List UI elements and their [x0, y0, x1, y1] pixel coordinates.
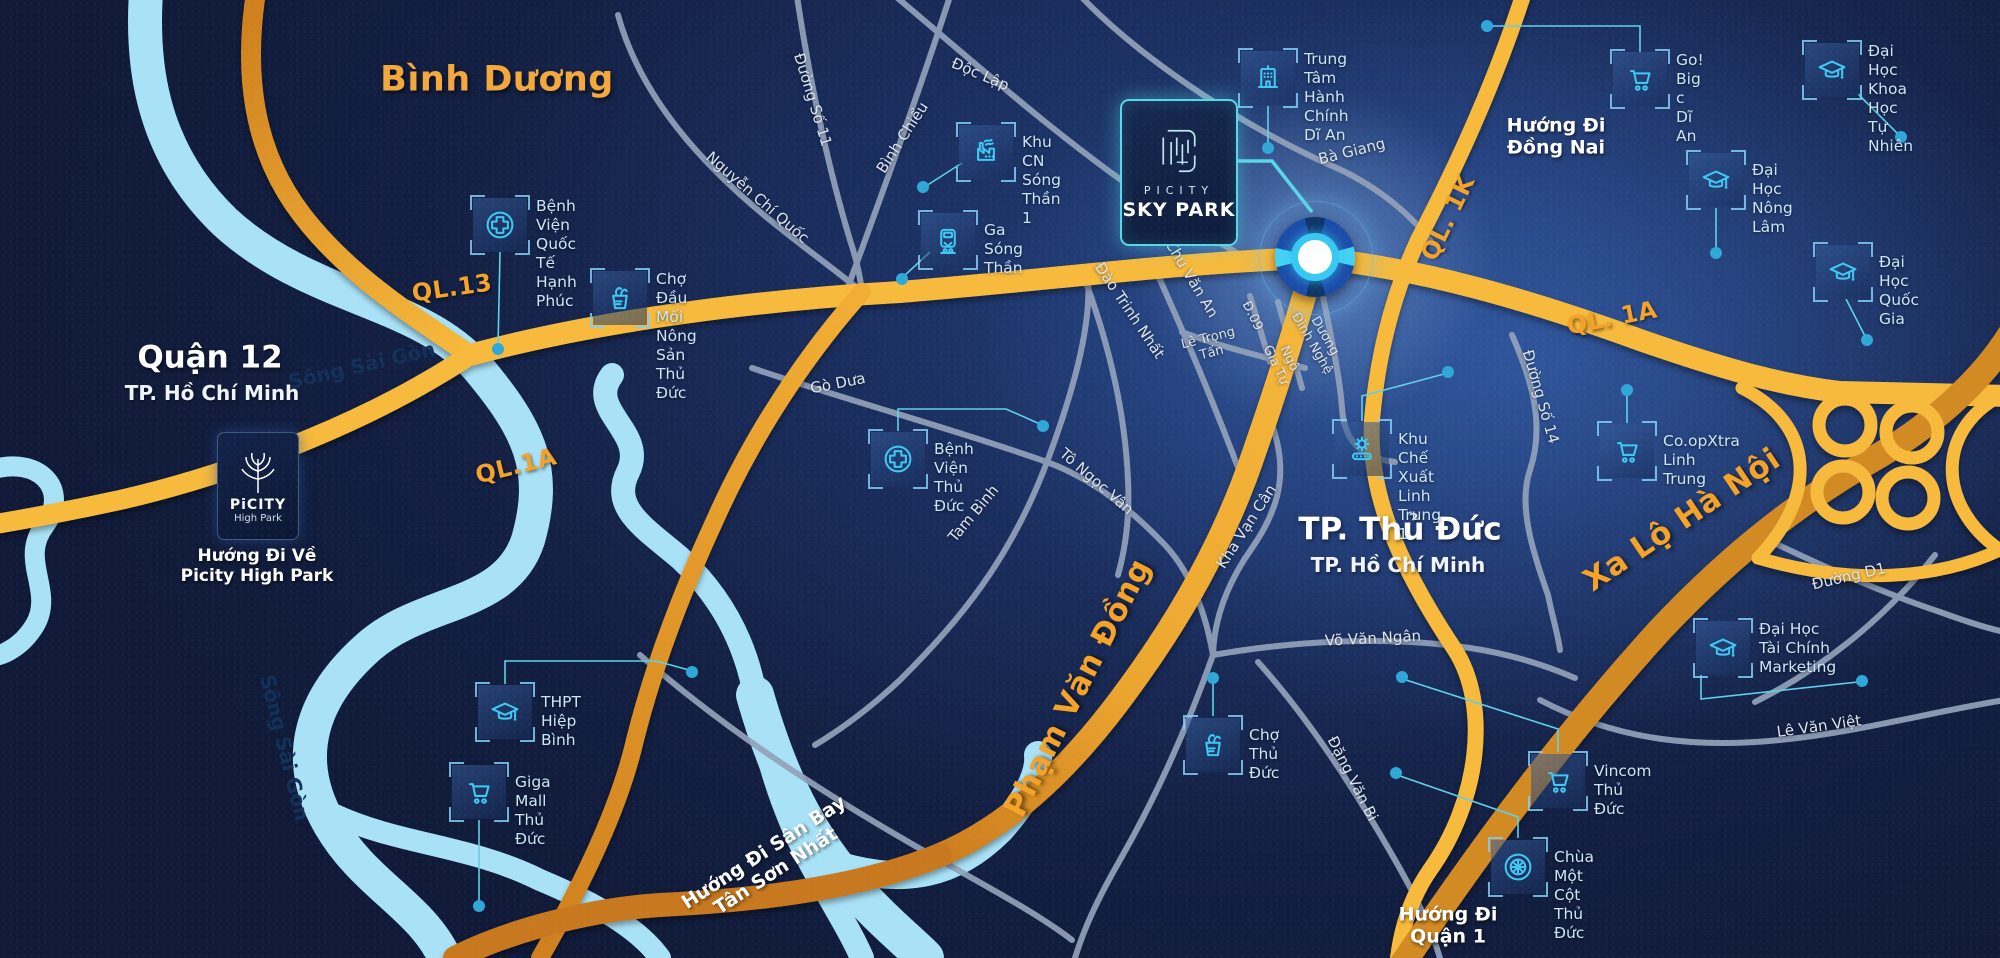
- gear-icon[interactable]: [1335, 422, 1389, 476]
- street-go-dua-to-ngoc-van: [752, 368, 1213, 655]
- graduation-cap-icon[interactable]: [1696, 621, 1750, 675]
- poi-label-benh-vien-thu-duc: Bệnh Viện Thủ Đức: [934, 440, 974, 516]
- graduation-cap-icon[interactable]: [1816, 245, 1870, 299]
- poi-label-dai-hoc-tai-chinh-marketing: Đại Học Tài Chính Marketing: [1759, 620, 1836, 677]
- picity-sky-park-card[interactable]: PICITY SKY PARK: [1120, 99, 1238, 246]
- river-left-squiggle: [0, 466, 54, 656]
- leader-dot: [492, 343, 504, 355]
- road-ql1a-main: [470, 258, 2000, 396]
- picity-sky-park-name: SKY PARK: [1122, 199, 1235, 221]
- cloverleaf-loop-nw: [1819, 399, 1871, 451]
- poi-label-cho-dau-moi-nong-san: Chợ Đầu Mối Nông Sản Thủ Đức: [656, 270, 697, 403]
- cloverleaf-loop-se: [1882, 472, 1934, 524]
- poi-label-chua-mot-cot-thu-duc: Chùa Một Cột Thủ Đức: [1554, 848, 1594, 943]
- building-icon[interactable]: [1241, 51, 1295, 105]
- leader-dot: [1710, 247, 1722, 259]
- poi-label-dai-hoc-quoc-gia: Đại Học Quốc Gia: [1879, 253, 1919, 329]
- poi-label-benh-vien-quoc-te-hanh-phuc: Bệnh Viện Quốc Tế Hạnh Phúc: [536, 197, 577, 311]
- leader-dot: [1442, 366, 1454, 378]
- street-duong-so-14: [1512, 335, 1560, 650]
- poi-label-trung-tam-hanh-chinh-di-an: Trung Tâm Hành Chính Dĩ An: [1304, 50, 1349, 145]
- leader-dot: [1207, 672, 1219, 684]
- street-chu-van-an: [1152, 262, 1242, 478]
- street-junction-south: [1075, 655, 1213, 958]
- train-icon[interactable]: [921, 213, 975, 267]
- picity-high-park-name: High Park: [234, 513, 282, 524]
- graduation-cap-icon[interactable]: [1689, 153, 1743, 207]
- leader-dot: [1037, 420, 1049, 432]
- poi-label-khu-cn-song-than-1: Khu CN Sóng Thần 1: [1022, 133, 1061, 228]
- picity-high-park-logo-icon: [236, 449, 280, 497]
- market-icon[interactable]: [1186, 718, 1240, 772]
- poi-label-cho-thu-duc: Chợ Thủ Đức: [1249, 726, 1279, 783]
- poi-label-ga-song-than: Ga Sóng Thần: [984, 221, 1023, 278]
- leader-line: [1846, 299, 1865, 336]
- location-map: Bình DươngQuận 12TP. Hồ Chí MinhTP. Thủ …: [0, 0, 2000, 958]
- leader-dot: [917, 181, 929, 193]
- poi-label-coopxtra-linh-trung: Co.opXtra Linh Trung: [1663, 432, 1740, 489]
- poi-label-khu-che-xuat-linh-trung-1: Khu Chế Xuất Linh Trung 1: [1398, 430, 1441, 544]
- dharma-wheel-icon[interactable]: [1491, 840, 1545, 894]
- leader-dot: [473, 900, 485, 912]
- hospital-icon[interactable]: [473, 198, 527, 252]
- leader-dot: [1861, 334, 1873, 346]
- graduation-cap-icon[interactable]: [1805, 43, 1859, 97]
- leader-dot: [1621, 384, 1633, 396]
- leader-dot: [1396, 671, 1408, 683]
- picity-high-park-card[interactable]: PiCITY High Park: [217, 432, 299, 540]
- poi-label-thpt-hiep-binh: THPT Hiệp Bình: [541, 693, 581, 750]
- graduation-cap-icon[interactable]: [478, 685, 532, 739]
- cart-icon[interactable]: [1613, 52, 1667, 106]
- poi-label-go-big-c-di-an: Go! Big c Dĩ An: [1676, 51, 1704, 146]
- cart-icon[interactable]: [452, 765, 506, 819]
- leader-dot: [1390, 767, 1402, 779]
- leader-dot: [686, 666, 698, 678]
- street-duong-d1: [1768, 540, 2000, 632]
- poi-label-dai-hoc-nong-lam: Đại Học Nông Lâm: [1752, 161, 1793, 237]
- factory-icon[interactable]: [959, 125, 1013, 179]
- picity-sky-park-brand: PICITY: [1144, 184, 1214, 197]
- hospital-icon[interactable]: [871, 432, 925, 486]
- poi-label-vincom-thu-duc: Vincom Thủ Đức: [1594, 762, 1652, 819]
- leader-dot: [896, 273, 908, 285]
- picity-sky-park-logo-icon: [1152, 124, 1206, 178]
- cart-icon[interactable]: [1531, 754, 1585, 808]
- leader-dot: [1856, 675, 1868, 687]
- leader-dot: [1481, 20, 1493, 32]
- leader-dot: [1262, 142, 1274, 154]
- picity-high-park-brand: PiCITY: [230, 497, 286, 513]
- market-icon[interactable]: [593, 271, 647, 325]
- cart-icon[interactable]: [1600, 424, 1654, 478]
- poi-label-dai-hoc-khoa-hoc-tu-nhien: Đại Học Khoa Học Tự Nhiên: [1868, 42, 1913, 156]
- marker-center: [1291, 233, 1339, 281]
- poi-label-giga-mall-thu-duc: Giga Mall Thủ Đức: [515, 773, 551, 849]
- leader-line: [498, 252, 500, 347]
- cloverleaf-edge-east: [1952, 392, 2000, 550]
